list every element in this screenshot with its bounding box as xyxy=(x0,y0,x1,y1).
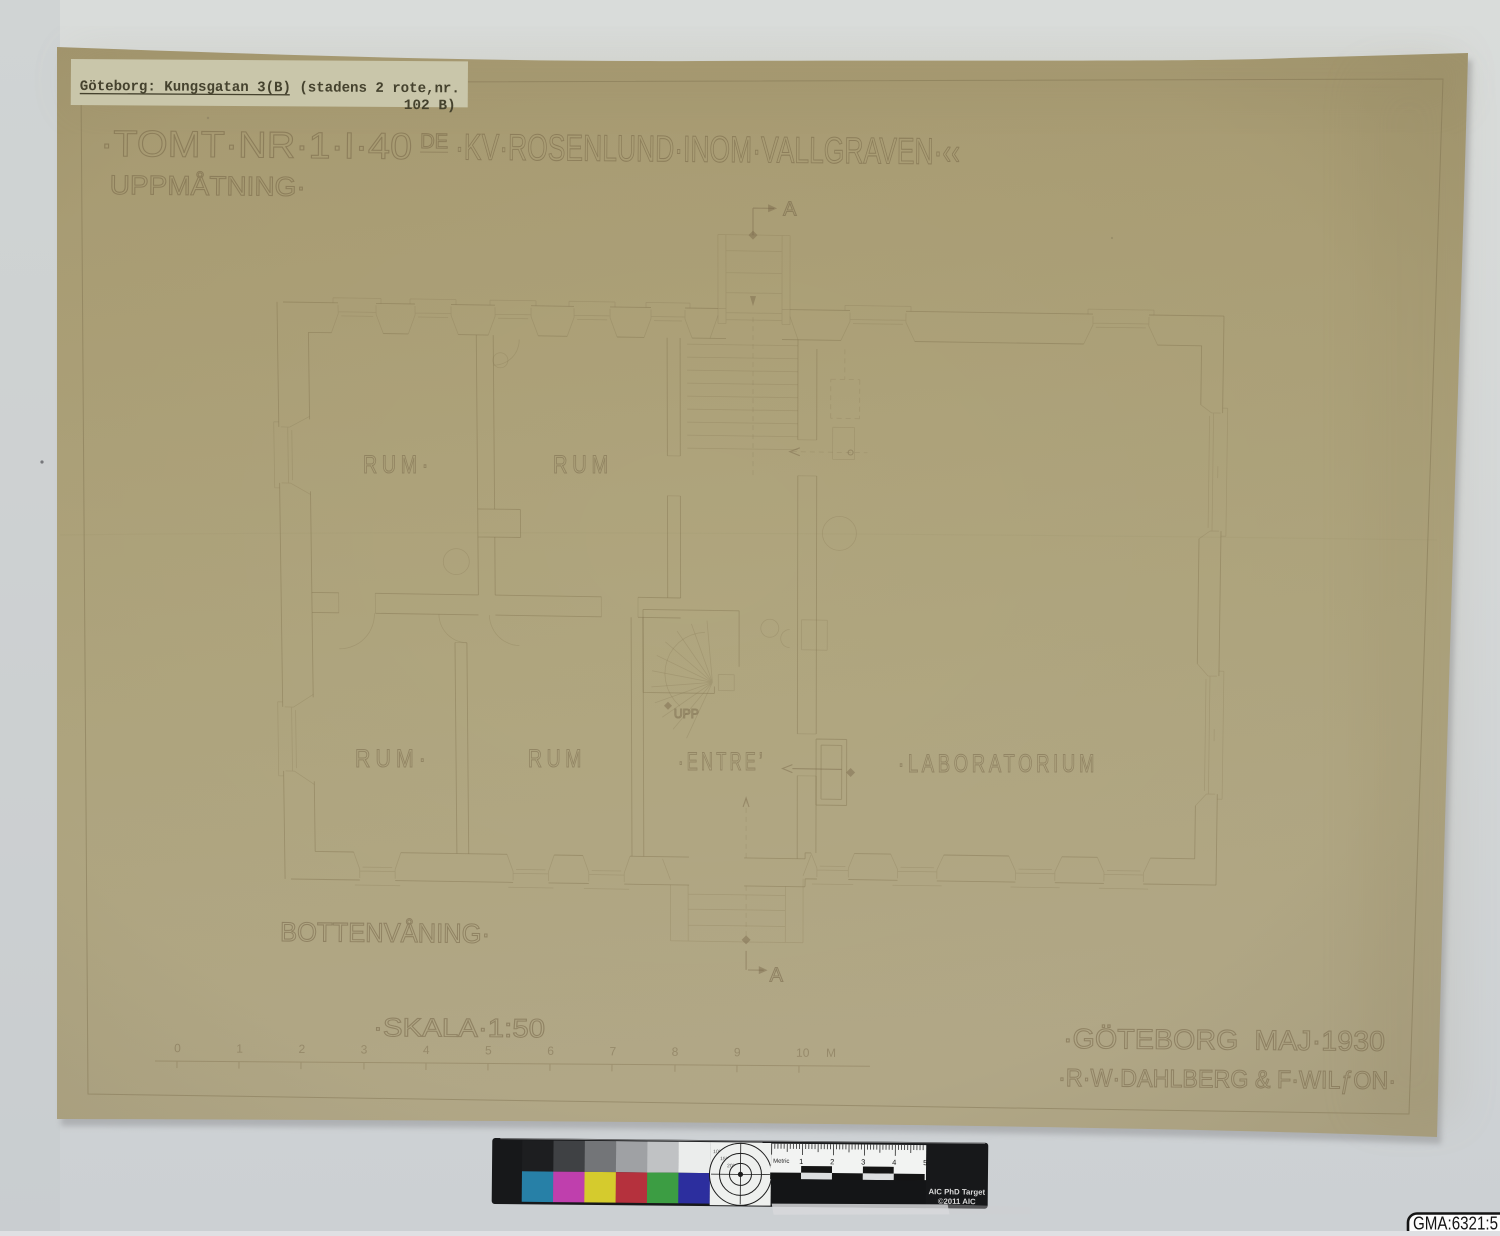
svg-text:·R·W·DAHLBERG & F·WILƒON·: ·R·W·DAHLBERG & F·WILƒON· xyxy=(1058,1064,1396,1095)
svg-text:·SKALA·1:50: ·SKALA·1:50 xyxy=(373,1012,545,1043)
svg-text:©2011 AIC: ©2011 AIC xyxy=(938,1197,976,1206)
svg-text:15°: 15° xyxy=(720,1156,728,1162)
svg-text:UPPMÅTNING·: UPPMÅTNING· xyxy=(110,169,306,202)
svg-text:RUM: RUM xyxy=(528,745,586,773)
svg-text:DE: DE xyxy=(420,130,448,153)
svg-text:3: 3 xyxy=(861,1158,865,1167)
svg-text:0: 0 xyxy=(174,1041,181,1055)
svg-text:5: 5 xyxy=(923,1158,927,1167)
svg-text:·GÖTEBORG MAJ·1930: ·GÖTEBORG MAJ·1930 xyxy=(1063,1023,1385,1057)
svg-text:10°: 10° xyxy=(713,1149,721,1155)
svg-text:RUM·: RUM· xyxy=(355,745,431,773)
svg-text:5: 5 xyxy=(485,1043,492,1057)
svg-text:GMA:6321:5: GMA:6321:5 xyxy=(1413,1214,1498,1232)
svg-text:1: 1 xyxy=(236,1042,243,1056)
svg-text:7: 7 xyxy=(609,1044,616,1058)
svg-text:10: 10 xyxy=(796,1046,810,1060)
svg-text:4: 4 xyxy=(423,1043,430,1057)
svg-text:A: A xyxy=(783,199,797,221)
svg-text:AIC PhD Target: AIC PhD Target xyxy=(928,1187,985,1197)
svg-text:102 B): 102 B) xyxy=(404,98,456,114)
svg-text:2: 2 xyxy=(298,1042,305,1056)
svg-text:9: 9 xyxy=(734,1045,741,1059)
svg-text:·LABORATORIUM: ·LABORATORIUM xyxy=(898,750,1098,778)
svg-text:6: 6 xyxy=(547,1044,554,1058)
svg-text:Metric: Metric xyxy=(773,1159,789,1165)
svg-text:RUM: RUM xyxy=(553,451,613,479)
svg-text:3: 3 xyxy=(361,1043,368,1057)
svg-text:20°: 20° xyxy=(727,1163,735,1169)
svg-text:·KV·ROSENLUND·INOM·VALLGRAVEN·: ·KV·ROSENLUND·INOM·VALLGRAVEN·‹‹ xyxy=(455,126,960,172)
svg-text:·TOMT·NR·1·I·40: ·TOMT·NR·1·I·40 xyxy=(100,123,412,167)
svg-text:RUM·: RUM· xyxy=(363,451,433,479)
svg-text:BOTTENVÅNING·: BOTTENVÅNING· xyxy=(280,916,490,949)
svg-text:1: 1 xyxy=(799,1157,803,1166)
svg-text:A: A xyxy=(770,964,784,986)
svg-text:UPP: UPP xyxy=(674,706,699,721)
svg-text:2: 2 xyxy=(830,1157,834,1166)
svg-text:4: 4 xyxy=(892,1158,896,1167)
svg-text:8: 8 xyxy=(672,1045,679,1059)
svg-text:·ENTRE’: ·ENTRE’ xyxy=(678,748,766,776)
svg-text:M: M xyxy=(826,1046,836,1060)
